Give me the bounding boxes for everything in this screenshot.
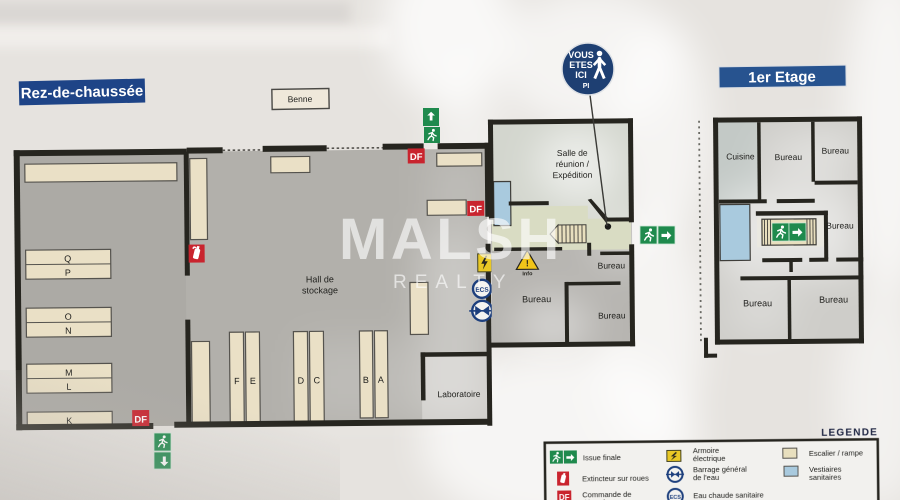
svg-text:PI: PI xyxy=(583,83,590,90)
svg-text:Laboratoire: Laboratoire xyxy=(437,389,480,399)
svg-text:A: A xyxy=(378,375,384,385)
svg-text:MALSH: MALSH xyxy=(339,207,563,272)
svg-text:Bureau: Bureau xyxy=(775,152,803,162)
svg-text:ICI: ICI xyxy=(575,70,587,80)
svg-text:VOUS: VOUS xyxy=(568,50,594,60)
svg-text:stockage: stockage xyxy=(302,285,338,295)
svg-text:Bureau: Bureau xyxy=(522,294,551,304)
svg-text:Info: Info xyxy=(522,271,533,277)
svg-text:Rez-de-chaussée: Rez-de-chaussée xyxy=(21,83,144,103)
svg-text:Issue finale: Issue finale xyxy=(583,453,621,462)
svg-text:Cuisine: Cuisine xyxy=(726,151,755,161)
svg-text:Benne: Benne xyxy=(288,94,313,104)
svg-text:B: B xyxy=(363,375,369,385)
svg-text:Hall de: Hall de xyxy=(306,274,334,284)
svg-text:DF: DF xyxy=(559,493,570,500)
svg-text:Extincteur sur roues: Extincteur sur roues xyxy=(582,474,649,484)
svg-text:Bureau: Bureau xyxy=(598,260,626,270)
svg-text:LEGENDE: LEGENDE xyxy=(821,427,878,439)
svg-text:DF: DF xyxy=(410,152,423,163)
svg-text:1er Etage: 1er Etage xyxy=(748,69,816,87)
svg-text:Bureau: Bureau xyxy=(822,145,850,155)
svg-text:REALTY: REALTY xyxy=(393,272,514,293)
svg-text:Eau chaude sanitaire: Eau chaude sanitaire xyxy=(693,490,764,500)
svg-text:Salle de: Salle de xyxy=(557,148,588,158)
svg-text:Expédition: Expédition xyxy=(553,170,593,180)
svg-text:Bureau: Bureau xyxy=(819,294,848,304)
svg-text:Bureau: Bureau xyxy=(743,298,772,308)
svg-text:électrique: électrique xyxy=(693,454,726,463)
svg-text:Bureau: Bureau xyxy=(598,310,626,320)
svg-text:P: P xyxy=(65,268,71,278)
svg-text:de l'eau: de l'eau xyxy=(693,473,719,482)
svg-text:Escalier / rampe: Escalier / rampe xyxy=(809,448,863,458)
svg-text:N: N xyxy=(65,326,72,336)
svg-text:O: O xyxy=(65,312,72,322)
svg-text:Q: Q xyxy=(64,254,71,264)
svg-text:Bureau: Bureau xyxy=(826,220,854,230)
svg-text:sanitaires: sanitaires xyxy=(809,473,841,482)
svg-text:réunion /: réunion / xyxy=(556,159,590,169)
svg-text:ECS: ECS xyxy=(670,495,682,500)
svg-text:ETES: ETES xyxy=(569,60,593,70)
